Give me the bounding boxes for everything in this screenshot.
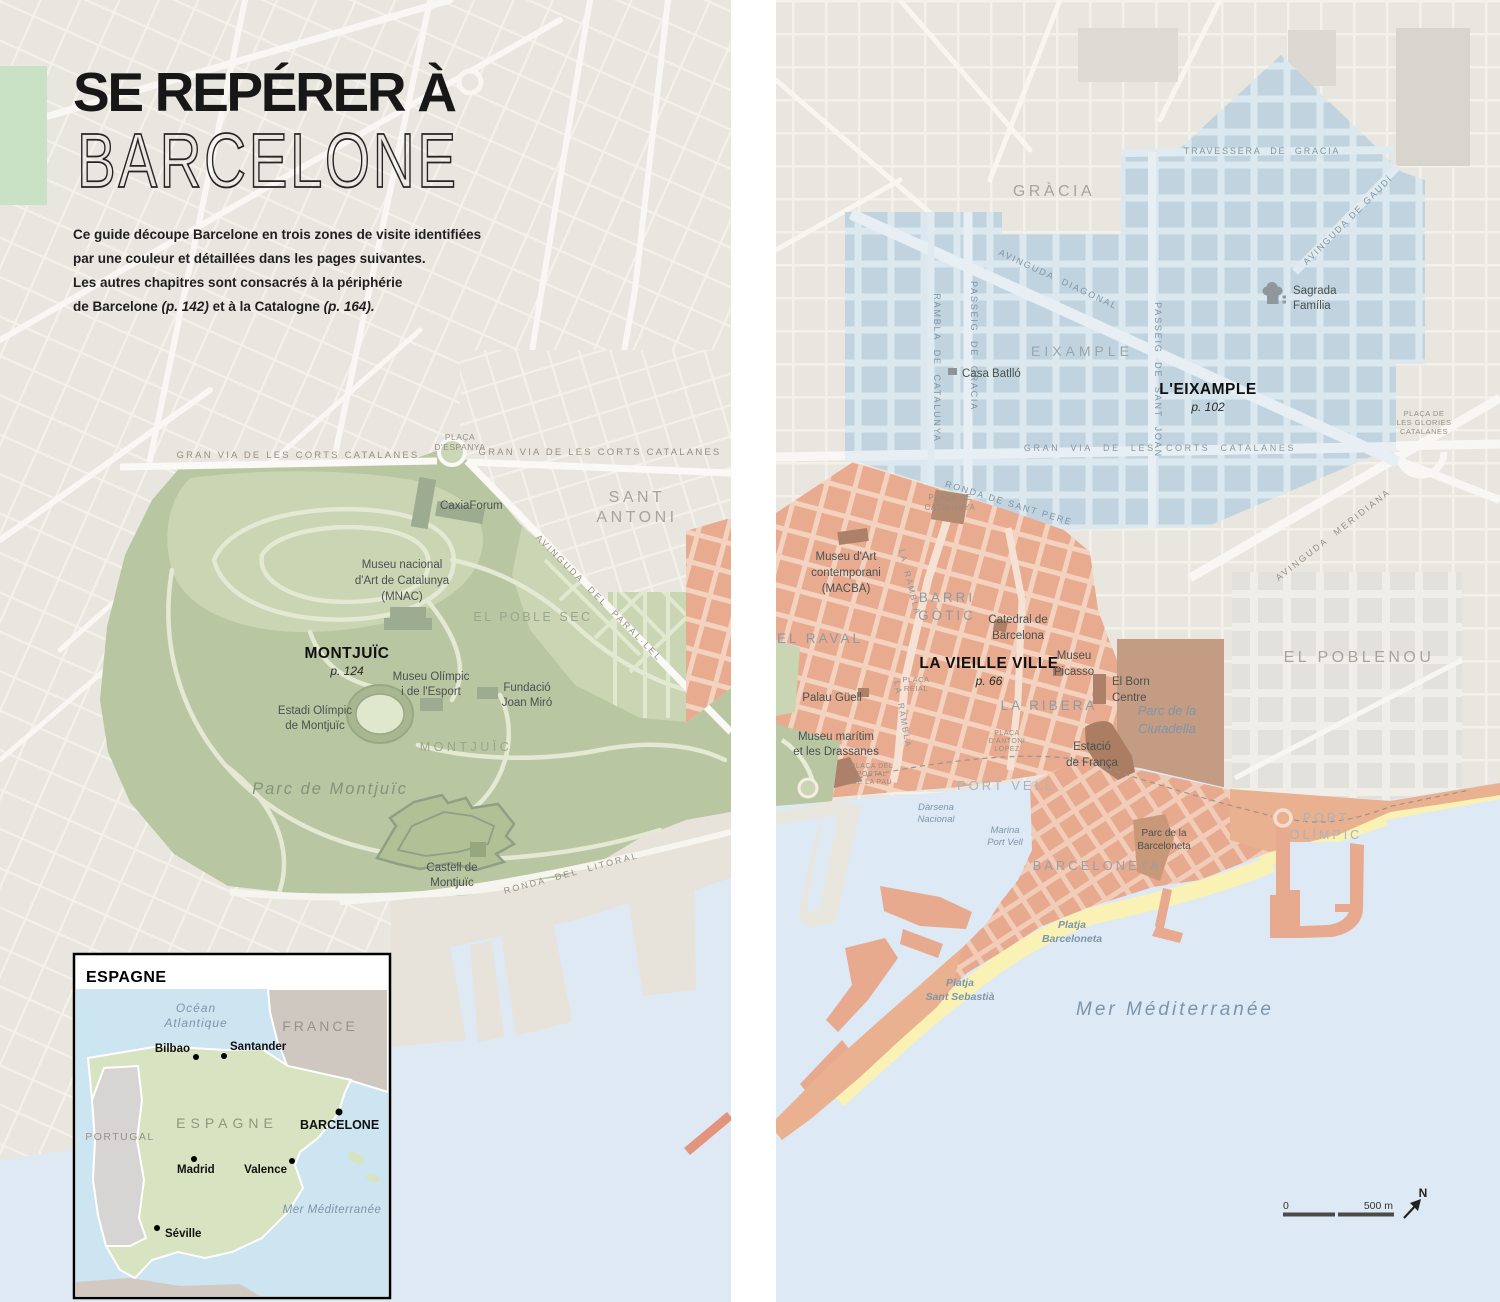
svg-text:SANT: SANT	[609, 489, 666, 506]
svg-text:PORT: PORT	[1303, 811, 1350, 825]
svg-text:Parc de la: Parc de la	[1141, 828, 1186, 839]
svg-text:p. 66: p. 66	[975, 674, 1003, 688]
svg-text:Port Vell: Port Vell	[987, 837, 1023, 848]
svg-text:D'ANTONI: D'ANTONI	[989, 738, 1026, 745]
svg-text:TRAVESSERA DE GRACIA: TRAVESSERA DE GRACIA	[1184, 146, 1340, 156]
svg-text:et les Drassanes: et les Drassanes	[793, 746, 879, 758]
svg-text:PASSEIG DE GRACIA: PASSEIG DE GRACIA	[969, 281, 979, 411]
svg-text:i de l'Esport: i de l'Esport	[401, 686, 462, 698]
svg-text:Parc de Montjuïc: Parc de Montjuïc	[252, 780, 408, 798]
svg-text:Barceloneta: Barceloneta	[1042, 933, 1102, 945]
svg-text:BARCELONE: BARCELONE	[77, 118, 458, 204]
svg-text:PLAÇA DE: PLAÇA DE	[928, 493, 971, 502]
svg-text:D'ESPANYA: D'ESPANYA	[434, 442, 485, 452]
svg-text:de Montjuïc: de Montjuïc	[285, 720, 345, 732]
svg-text:FRANCE: FRANCE	[282, 1018, 358, 1034]
svg-text:N: N	[1419, 1186, 1428, 1200]
svg-text:Museu: Museu	[1057, 650, 1092, 662]
svg-text:0: 0	[1283, 1200, 1289, 1212]
svg-text:Catedral de: Catedral de	[988, 614, 1047, 626]
svg-text:Platja: Platja	[946, 977, 974, 989]
svg-text:Atlantique: Atlantique	[163, 1016, 227, 1030]
svg-text:Palau Güell: Palau Güell	[802, 692, 861, 704]
svg-text:ANTONI: ANTONI	[596, 509, 677, 526]
svg-text:Mer Méditerranée: Mer Méditerranée	[1076, 999, 1274, 1020]
svg-text:Séville: Séville	[165, 1228, 201, 1240]
svg-text:GRÀCIA: GRÀCIA	[1013, 181, 1095, 200]
svg-text:CATALANES: CATALANES	[1400, 427, 1448, 436]
svg-text:PLAÇA: PLAÇA	[902, 675, 929, 684]
svg-text:LES GLORIES: LES GLORIES	[1396, 418, 1451, 427]
svg-text:EIXAMPLE: EIXAMPLE	[1031, 343, 1133, 359]
svg-text:Madrid: Madrid	[177, 1164, 215, 1176]
svg-text:LA VIEILLE VILLE: LA VIEILLE VILLE	[919, 655, 1058, 672]
svg-text:par une couleur et détaillées: par une couleur et détaillées dans les p…	[73, 251, 426, 266]
svg-text:Sagrada: Sagrada	[1293, 285, 1337, 297]
svg-text:(MNAC): (MNAC)	[381, 591, 423, 603]
svg-text:PORTUGAL: PORTUGAL	[85, 1131, 155, 1143]
svg-text:PLAÇA DE: PLAÇA DE	[1404, 409, 1445, 418]
svg-text:Museu nacional: Museu nacional	[362, 559, 443, 571]
svg-text:Mer Méditerranée: Mer Méditerranée	[283, 1204, 382, 1216]
svg-text:GRAN VIA DE LES CORTS CATALANE: GRAN VIA DE LES CORTS CATALANES	[479, 447, 722, 458]
svg-text:Picasso: Picasso	[1054, 666, 1094, 678]
svg-text:Castell de: Castell de	[426, 862, 477, 874]
svg-text:Estació: Estació	[1073, 741, 1111, 753]
svg-text:DE LA PAU: DE LA PAU	[852, 779, 892, 786]
svg-text:EL POBLENOU: EL POBLENOU	[1284, 649, 1435, 666]
svg-text:Barceloneta: Barceloneta	[1137, 841, 1191, 852]
svg-text:p. 124: p. 124	[329, 664, 364, 678]
svg-text:contemporani: contemporani	[811, 567, 881, 579]
svg-text:BARCELONE: BARCELONE	[300, 1118, 379, 1132]
svg-text:EL POBLE SEC: EL POBLE SEC	[473, 610, 592, 624]
svg-text:MONTJUÏC: MONTJUÏC	[420, 740, 513, 754]
svg-text:p. 102: p. 102	[1190, 400, 1225, 414]
svg-text:PORT VELL: PORT VELL	[957, 778, 1055, 793]
svg-text:MONTJUÏC: MONTJUÏC	[305, 645, 390, 662]
svg-text:de França: de França	[1066, 757, 1118, 769]
svg-text:PLAÇA: PLAÇA	[994, 730, 1019, 737]
svg-text:Valence: Valence	[244, 1164, 287, 1176]
svg-text:ESPAGNE: ESPAGNE	[86, 969, 167, 986]
svg-text:500 m: 500 m	[1364, 1200, 1393, 1212]
svg-text:(MACBA): (MACBA)	[822, 583, 871, 595]
svg-text:Marina: Marina	[990, 825, 1019, 836]
svg-text:Fundació: Fundació	[503, 682, 550, 694]
svg-text:PORTAL: PORTAL	[857, 771, 887, 778]
svg-text:de Barcelone (p. 142) et à la: de Barcelone (p. 142) et à la Catalogne …	[73, 299, 375, 314]
svg-text:L'EIXAMPLE: L'EIXAMPLE	[1159, 381, 1256, 398]
svg-text:Nacional: Nacional	[918, 814, 956, 825]
svg-text:Océan: Océan	[176, 1001, 216, 1015]
svg-text:SE REPÉRER À: SE REPÉRER À	[73, 61, 457, 123]
svg-text:Platja: Platja	[1058, 919, 1086, 931]
svg-text:Santander: Santander	[230, 1041, 287, 1053]
svg-text:PASSEIG DE SANT JOAN: PASSEIG DE SANT JOAN	[1153, 302, 1163, 458]
svg-text:Joan Miró: Joan Miró	[502, 697, 553, 709]
svg-text:Barcelona: Barcelona	[992, 630, 1044, 642]
svg-text:CATALUNYA: CATALUNYA	[925, 503, 976, 512]
svg-text:Estadi Olímpic: Estadi Olímpic	[278, 705, 352, 717]
svg-text:Sant Sebastià: Sant Sebastià	[926, 991, 995, 1003]
svg-text:El Born: El Born	[1112, 676, 1150, 688]
svg-text:Museu marítim: Museu marítim	[798, 731, 874, 743]
svg-text:PLAÇA DEL: PLAÇA DEL	[851, 763, 894, 770]
svg-text:Ce guide découpe Barcelone en: Ce guide découpe Barcelone en trois zone…	[73, 227, 481, 242]
svg-text:Casa Batlló: Casa Batlló	[962, 368, 1021, 380]
svg-text:Museu d'Art: Museu d'Art	[816, 551, 878, 563]
svg-text:Parc de la: Parc de la	[1138, 703, 1197, 718]
svg-text:LOPEZ: LOPEZ	[994, 746, 1020, 753]
svg-text:Dàrsena: Dàrsena	[918, 802, 954, 813]
svg-text:GÒTIC: GÒTIC	[918, 608, 976, 623]
svg-text:BARRI: BARRI	[919, 590, 975, 605]
svg-text:OLÍMPIC: OLÍMPIC	[1290, 827, 1362, 842]
svg-text:RAMBLA DE CATALUNYA: RAMBLA DE CATALUNYA	[932, 293, 942, 442]
svg-text:GRAN VIA DE LES CORTS CATALANE: GRAN VIA DE LES CORTS CATALANES	[177, 450, 420, 461]
svg-text:d'Art de Catalunya: d'Art de Catalunya	[355, 575, 450, 587]
svg-text:PLAÇA: PLAÇA	[445, 432, 475, 442]
svg-text:REIAL: REIAL	[904, 684, 928, 693]
svg-text:CaxiaForum: CaxiaForum	[440, 500, 503, 512]
svg-text:GRAN VIA DE LES CORTS CAT: GRAN VIA DE LES CORTS CATALANES	[1024, 443, 1296, 453]
svg-text:ESPAGNE: ESPAGNE	[176, 1115, 278, 1131]
svg-text:Les autres chapitres sont cons: Les autres chapitres sont consacrés à la…	[73, 275, 403, 290]
svg-text:Bilbao: Bilbao	[155, 1043, 190, 1055]
svg-text:Montjuïc: Montjuïc	[430, 877, 474, 889]
svg-text:LA RIBERA: LA RIBERA	[1001, 698, 1098, 713]
svg-text:EL RAVAL: EL RAVAL	[777, 631, 863, 646]
svg-text:Família: Família	[1293, 300, 1331, 312]
svg-text:Museu Olímpic: Museu Olímpic	[393, 671, 470, 683]
svg-text:BARCELONETA: BARCELONETA	[1033, 858, 1162, 873]
svg-text:Ciutadella: Ciutadella	[1138, 721, 1196, 736]
